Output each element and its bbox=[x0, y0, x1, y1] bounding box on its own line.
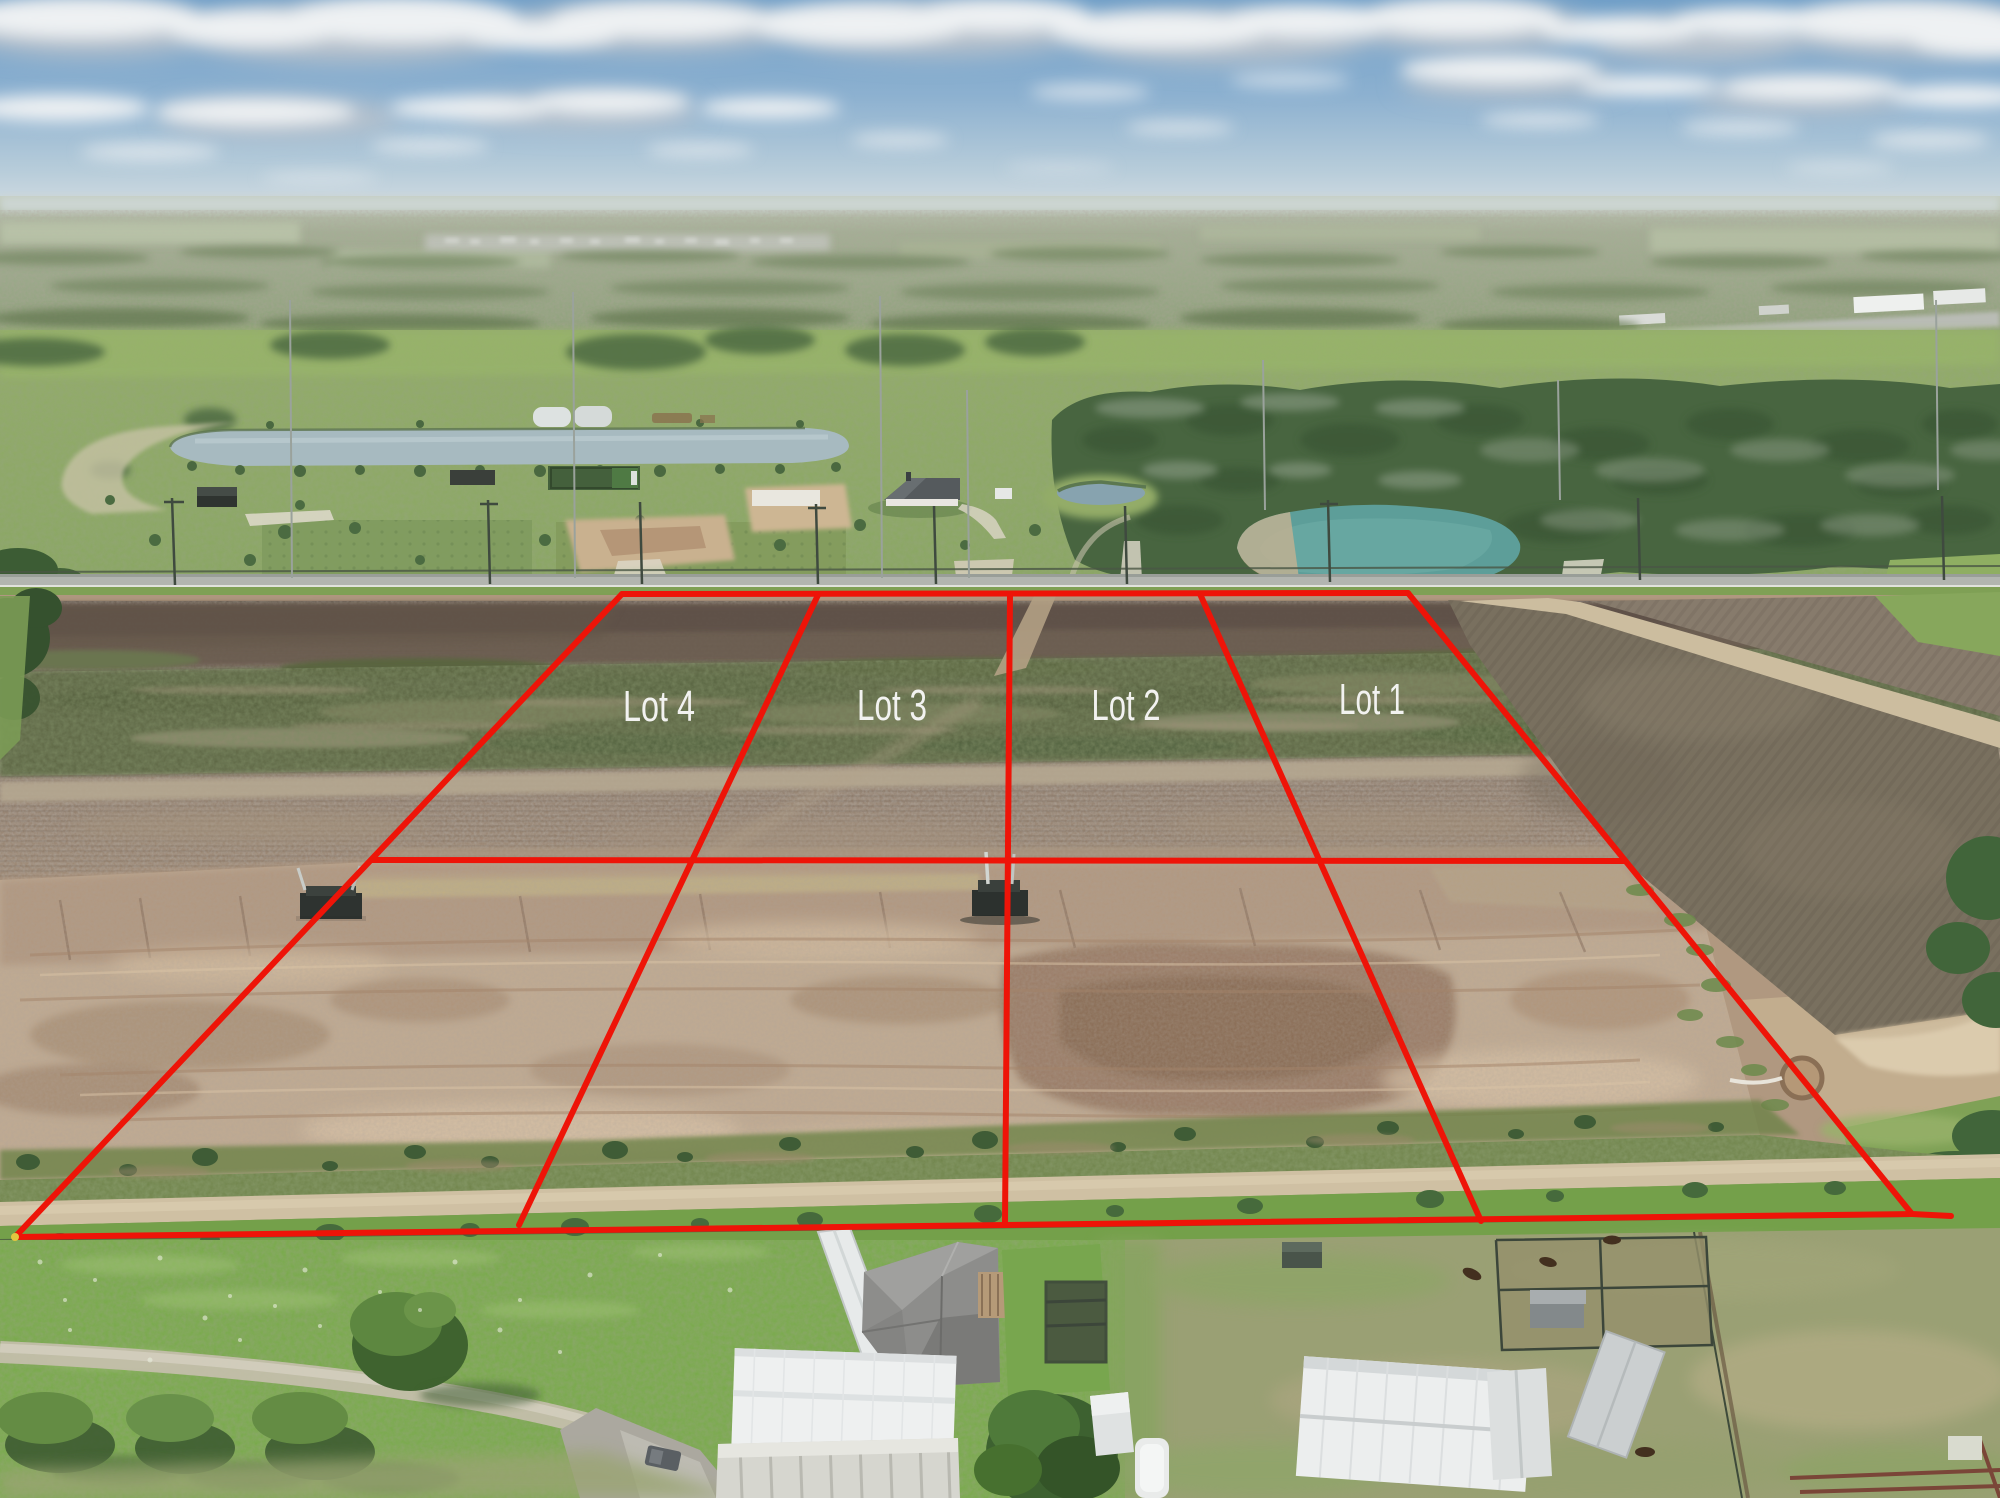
svg-text:Lot 1: Lot 1 bbox=[1339, 675, 1405, 724]
svg-text:Lot 4: Lot 4 bbox=[623, 682, 695, 731]
svg-text:Lot 2: Lot 2 bbox=[1092, 681, 1161, 730]
svg-text:Lot 3: Lot 3 bbox=[857, 681, 927, 730]
